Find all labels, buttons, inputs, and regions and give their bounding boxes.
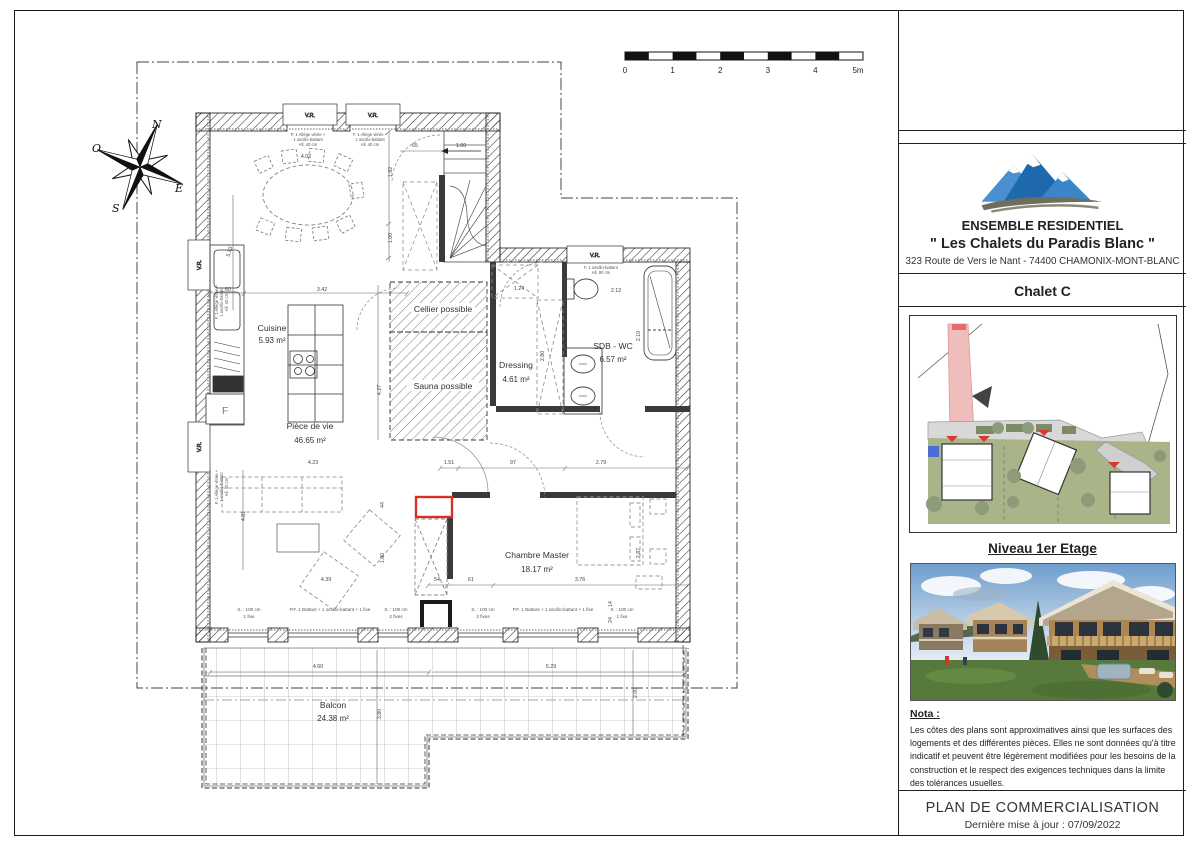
vr-tag: V.R. bbox=[197, 260, 203, 270]
room-label-cellier: Cellier possible bbox=[414, 304, 472, 314]
scale-tick-label: 4 bbox=[813, 66, 818, 75]
balcony bbox=[202, 648, 688, 788]
svg-text:6.57 m²: 6.57 m² bbox=[599, 355, 626, 364]
dimension-label: 4.81 bbox=[241, 511, 247, 521]
room-label-sdb: SDB - WC bbox=[593, 341, 633, 351]
residence-address: 323 Route de Vers le Nant - 74400 CHAMON… bbox=[899, 256, 1186, 267]
logo bbox=[899, 150, 1186, 219]
window-note: F. 1 Allège vitrée +1 oscillo-battantAll… bbox=[353, 132, 388, 147]
dimension-label: 97 bbox=[510, 460, 516, 466]
room-label-chambre: Chambre Master bbox=[505, 550, 569, 560]
compass-s: S bbox=[112, 202, 120, 215]
dressing-fixtures bbox=[492, 265, 563, 414]
dimension-label: 2.87 bbox=[636, 548, 642, 558]
dimension-label: 1.00 bbox=[388, 233, 394, 243]
living-furniture bbox=[222, 477, 400, 610]
opening-label: S. : 100 cm2 fixes bbox=[471, 607, 494, 619]
window-note: F. 1 oscillo-battantAll. 90 cm bbox=[584, 265, 619, 275]
dimension-label: 44 bbox=[380, 502, 386, 508]
level-title: Niveau 1er Etage bbox=[899, 541, 1186, 556]
svg-text:46.65 m²: 46.65 m² bbox=[294, 436, 326, 445]
divider bbox=[899, 143, 1186, 144]
scale-tick-label: 1 bbox=[670, 66, 675, 75]
room-label-dressing: Dressing bbox=[499, 360, 533, 370]
dimension-label: 1.80 bbox=[380, 553, 386, 563]
dimension-label: 5.29 bbox=[546, 664, 556, 670]
dining-set bbox=[254, 148, 364, 241]
floor-plan: N O E S 012345m bbox=[0, 0, 900, 848]
scale-bar: 012345m bbox=[623, 52, 864, 75]
divider bbox=[899, 790, 1186, 791]
svg-text:4.61 m²: 4.61 m² bbox=[502, 375, 529, 384]
nota-text: Les côtes des plans sont approximatives … bbox=[910, 724, 1176, 790]
vr-tag: V.R. bbox=[305, 113, 315, 119]
dimension-label: 54 bbox=[434, 577, 440, 583]
opening-label: P.F. 1 Battant + 1 oscillo-battant + 1 f… bbox=[513, 607, 594, 612]
dimension-label: 3.76 bbox=[575, 577, 585, 583]
scale-tick-label: 0 bbox=[623, 66, 628, 75]
dimension-label: 4.27 bbox=[377, 385, 383, 395]
dimension-label: 65 bbox=[412, 143, 418, 149]
red-highlight-duct bbox=[416, 497, 452, 517]
opening-label: S. : 100 cm2 fixes bbox=[384, 607, 407, 619]
chalet-photo bbox=[910, 563, 1176, 701]
divider bbox=[899, 130, 1186, 131]
dimension-label: 1.51 bbox=[444, 460, 454, 466]
svg-text:24.38 m²: 24.38 m² bbox=[317, 714, 349, 723]
dimension-label: 4.39 bbox=[321, 577, 331, 583]
plan-sheet: N O E S 012345m bbox=[0, 0, 1200, 848]
vr-tag: V.R. bbox=[590, 253, 600, 259]
mountain-logo-icon bbox=[968, 150, 1118, 214]
opening-label: S. : 100 cm1 fixe bbox=[237, 607, 260, 619]
divider bbox=[899, 273, 1186, 274]
fridge-tag: F bbox=[222, 406, 228, 417]
dimension-label: 24 bbox=[608, 617, 614, 623]
compass-o: O bbox=[92, 142, 101, 155]
scale-tick-label: 3 bbox=[766, 66, 771, 75]
window-note: F. 1 Allège vitrée +1 oscillo-battantAll… bbox=[214, 469, 229, 504]
nota-title: Nota : bbox=[910, 708, 940, 720]
vr-tag: V.R. bbox=[368, 113, 378, 119]
opening-label: P.F. 1 Battant + 1 oscillo-battant + 1 f… bbox=[290, 607, 371, 612]
dimension-label: 1.00 bbox=[456, 143, 466, 149]
dimension-label: 60 bbox=[225, 287, 231, 293]
dimension-label: 3.42 bbox=[317, 287, 327, 293]
last-update: Dernière mise à jour : 07/09/2022 bbox=[899, 819, 1186, 831]
compass-n: N bbox=[151, 118, 162, 131]
unit-name: Chalet C bbox=[899, 283, 1186, 299]
kitchen: F bbox=[206, 245, 343, 425]
compass-rose: N O E S bbox=[80, 107, 200, 227]
dimension-label: 2.00 bbox=[633, 688, 639, 698]
title-block-panel: ENSEMBLE RESIDENTIEL " Les Chalets du Pa… bbox=[898, 10, 1186, 836]
dimension-label: 4.23 bbox=[308, 460, 318, 466]
compass-e: E bbox=[174, 182, 183, 195]
company-name: ENSEMBLE RESIDENTIEL bbox=[899, 218, 1186, 233]
svg-text:18.17 m²: 18.17 m² bbox=[521, 565, 553, 574]
dimension-label: 2.10 bbox=[636, 331, 642, 341]
dimension-label: 3.80 bbox=[377, 709, 383, 719]
dimension-label: 61 bbox=[468, 577, 474, 583]
room-label-piece-de-vie: Pièce de vie bbox=[287, 421, 334, 431]
window-note: P. 1 Allège vitrée +1 oscillo-battantAll… bbox=[291, 132, 326, 147]
dimension-label: 2.80 bbox=[540, 351, 546, 361]
divider bbox=[899, 306, 1186, 307]
dimension-label: 2.12 bbox=[611, 288, 621, 294]
dimension-label: 4.02 bbox=[301, 154, 311, 160]
possible-zones: Cellier possible Sauna possible bbox=[390, 282, 487, 440]
site-plan-thumbnail bbox=[909, 315, 1177, 533]
scale-tick-label: 5m bbox=[852, 66, 863, 75]
plan-type-title: PLAN DE COMMERCIALISATION bbox=[899, 800, 1186, 816]
room-label-sauna: Sauna possible bbox=[414, 381, 473, 391]
dimension-label: 1.92 bbox=[388, 167, 394, 177]
vr-tag: V.R. bbox=[197, 442, 203, 452]
dimension-label: 1.24 bbox=[514, 286, 524, 292]
opening-labels: S. : 100 cm1 fixeP.F. 1 Battant + 1 osci… bbox=[237, 607, 633, 619]
residence-name: " Les Chalets du Paradis Blanc " bbox=[899, 236, 1186, 252]
dimension-label: 4.60 bbox=[313, 664, 323, 670]
dimension-label: 2.79 bbox=[596, 460, 606, 466]
room-label-cuisine: Cuisine bbox=[258, 323, 287, 333]
svg-text:5.93 m²: 5.93 m² bbox=[258, 336, 285, 345]
scale-tick-label: 2 bbox=[718, 66, 723, 75]
room-label-balcon: Balcon bbox=[320, 700, 346, 710]
